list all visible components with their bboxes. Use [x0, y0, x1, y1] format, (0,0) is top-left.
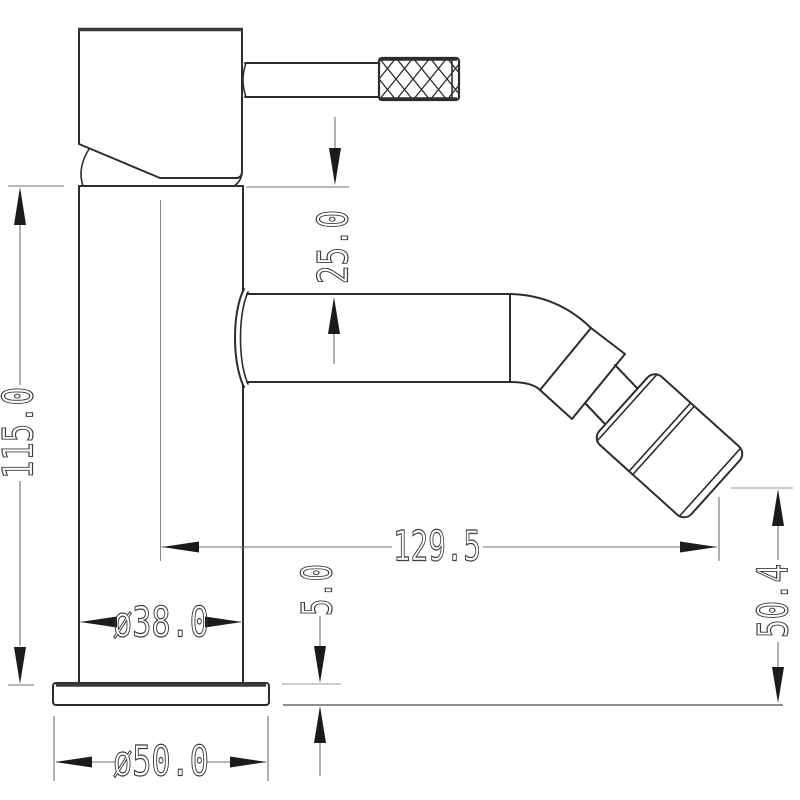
dimension-lines: [8, 117, 793, 781]
dim-base-diameter: ø50.0: [113, 737, 209, 786]
spray-head: [593, 370, 747, 521]
knurl-grip: [379, 58, 459, 100]
base-plate: [53, 683, 269, 705]
dim-base-thickness: 5.0: [293, 564, 342, 616]
dim-outlet-height: 50.4: [749, 564, 798, 638]
dim-spout-reach: 129.5: [393, 522, 481, 571]
dim-body-diameter: ø38.0: [113, 598, 209, 647]
dimension-labels: 115.0 25.0 129.5 50.4 5.0 ø38.0 ø50.0: [0, 210, 798, 786]
technical-drawing-page: 115.0 25.0 129.5 50.4 5.0 ø38.0 ø50.0: [0, 0, 800, 800]
handle-body: [78, 30, 243, 187]
dim-total-height: 115.0: [0, 387, 43, 479]
spout: [247, 294, 637, 423]
dim-handle-clearance: 25.0: [309, 210, 358, 284]
faucet-technical-drawing: 115.0 25.0 129.5 50.4 5.0 ø38.0 ø50.0: [0, 0, 800, 800]
handle-lever: [243, 63, 379, 97]
